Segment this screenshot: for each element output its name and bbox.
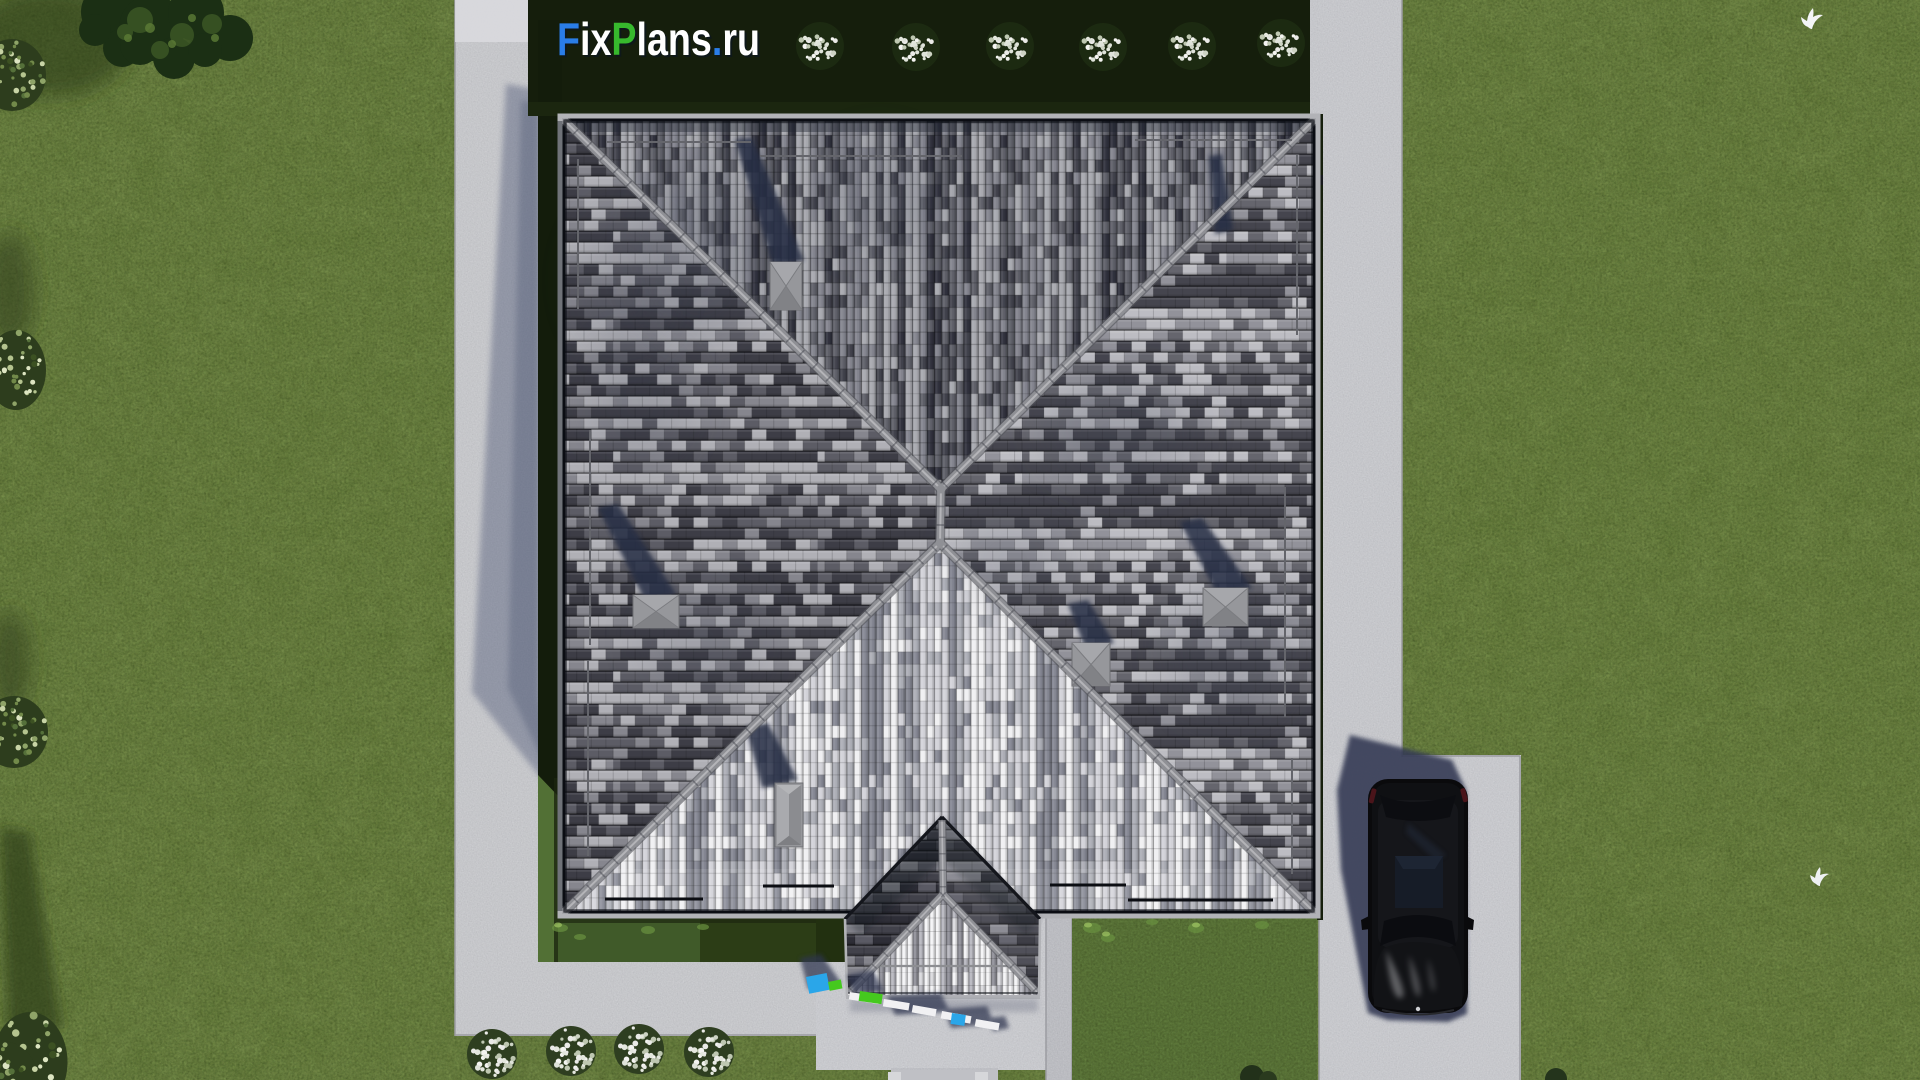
svg-text:FixPlans.ru: FixPlans.ru xyxy=(557,13,760,65)
